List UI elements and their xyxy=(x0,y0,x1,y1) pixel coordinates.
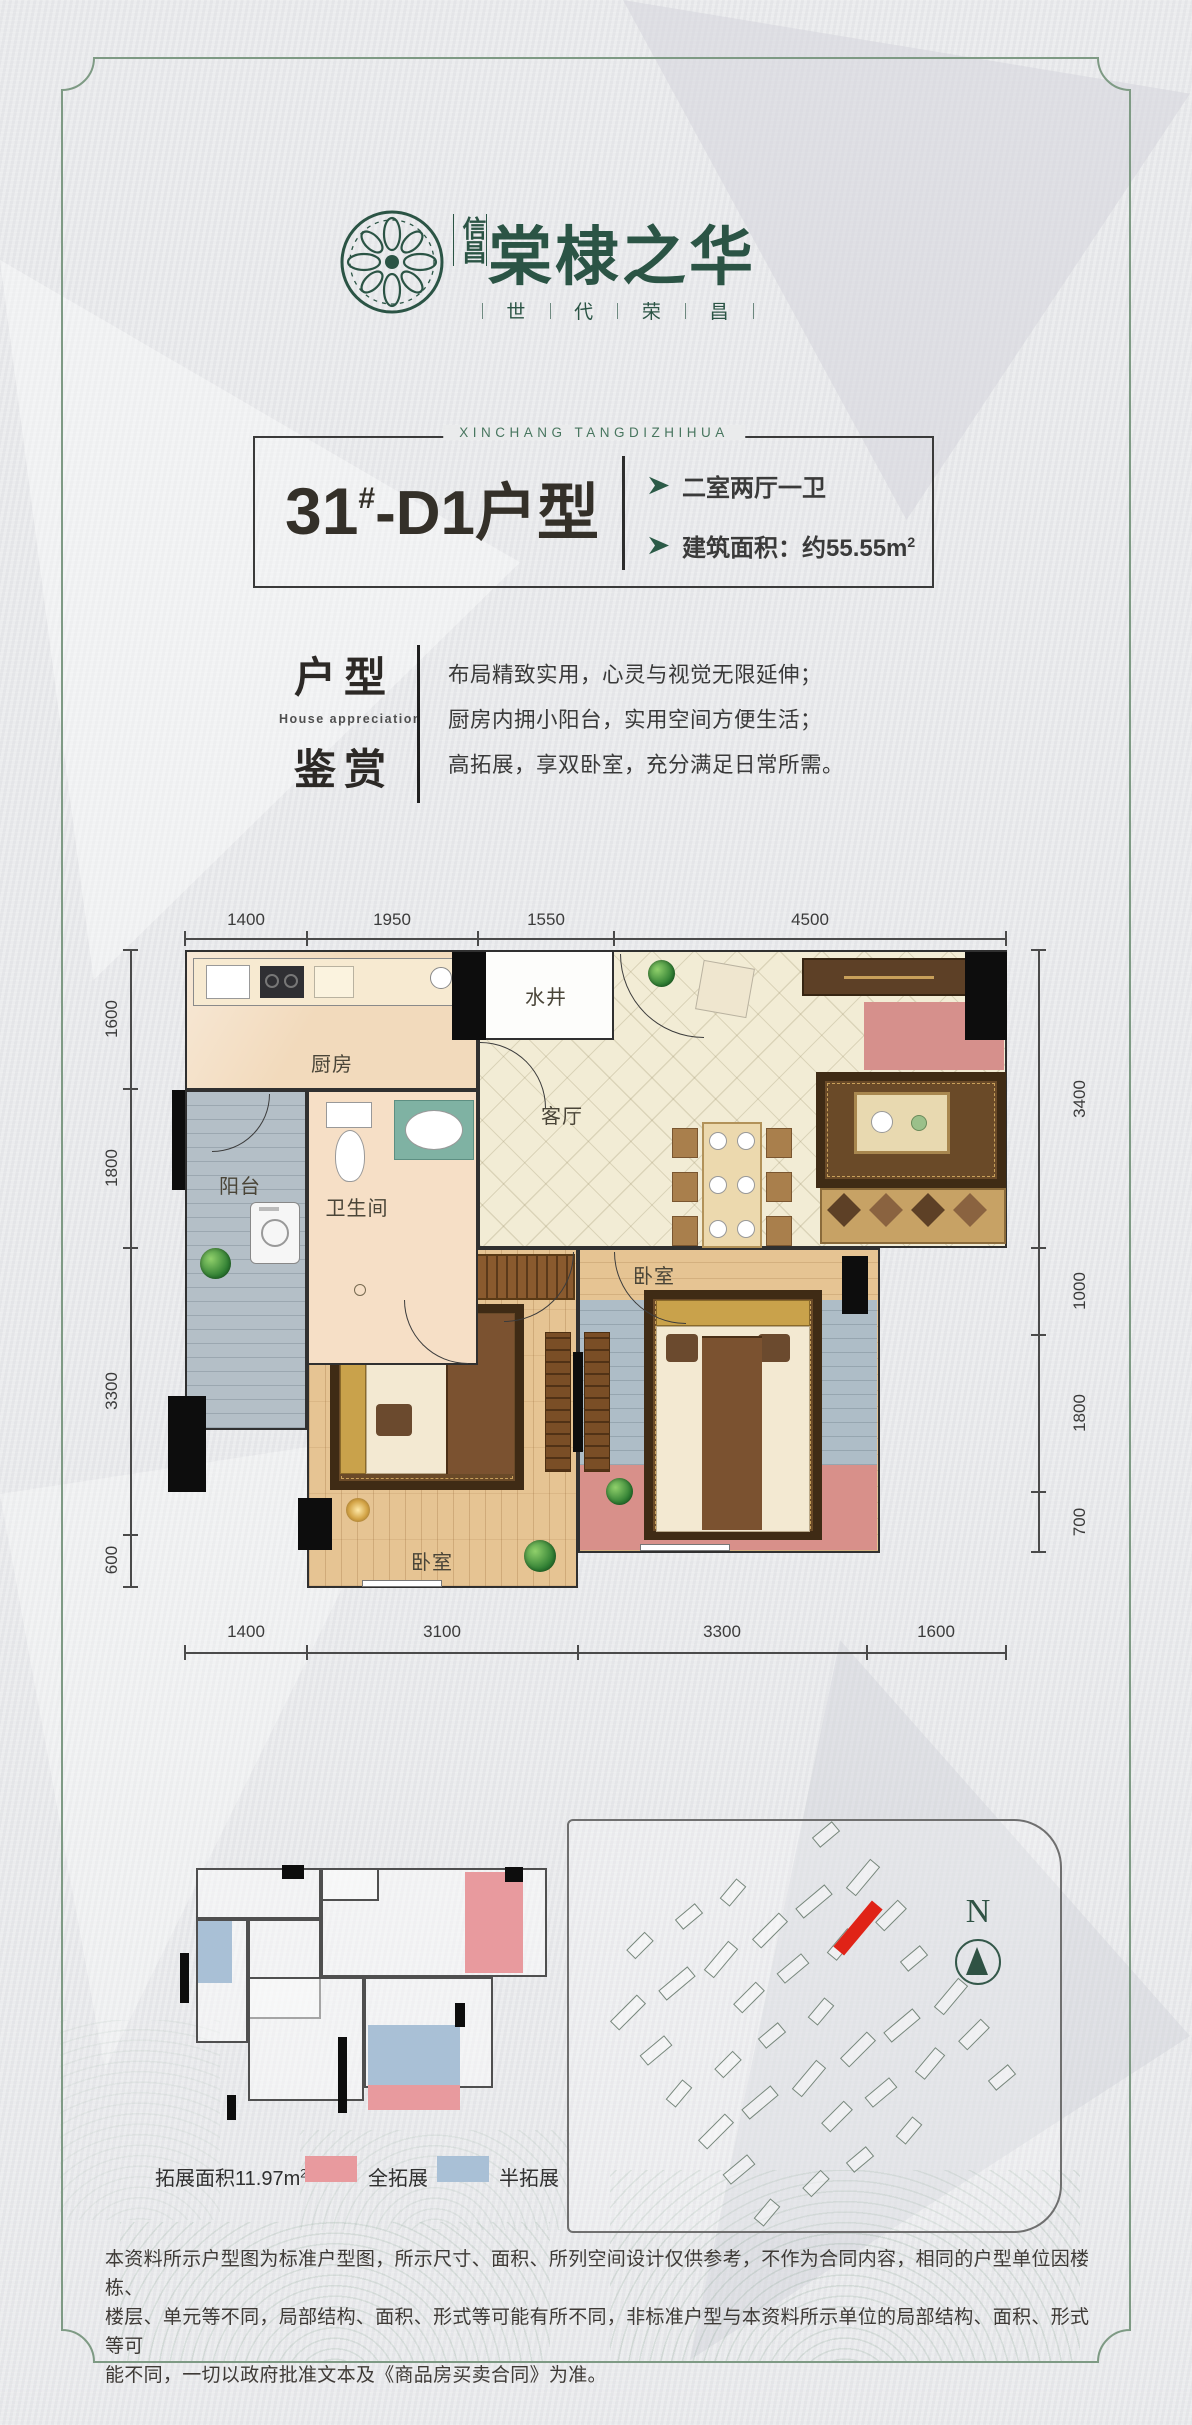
dim-line-bottom xyxy=(185,1652,1007,1654)
wardrobe xyxy=(545,1332,571,1472)
appreciation-line: 布局精致实用，心灵与视觉无限延伸； xyxy=(448,653,844,698)
mini-half-expansion xyxy=(198,1921,232,1983)
disclaimer-line: 能不同，一切以政府批准文本及《商品房买卖合同》为准。 xyxy=(105,2361,1095,2390)
structural-column xyxy=(452,952,486,1040)
site-building-outline xyxy=(751,1912,787,1948)
tv-cabinet xyxy=(802,958,974,996)
counter-sink-round xyxy=(430,967,452,989)
dining-chair xyxy=(766,1172,792,1202)
structural-column xyxy=(842,1256,868,1314)
mini-full-expansion xyxy=(368,2085,460,2110)
vanity-counter xyxy=(394,1100,474,1160)
feature-arrow-icon xyxy=(649,476,669,495)
bed-pillow xyxy=(758,1334,790,1362)
site-building-outline xyxy=(658,1966,695,2000)
bedroom1-door-arc xyxy=(504,1252,574,1322)
structural-column xyxy=(168,1396,206,1492)
room-label-bedroom1: 卧室 xyxy=(402,1546,462,1575)
site-building-outline xyxy=(807,1997,834,2025)
site-building-outline xyxy=(753,2198,780,2226)
ceiling-lamp-icon xyxy=(354,1284,366,1296)
brand-medallion-icon xyxy=(338,208,446,316)
site-building-outline xyxy=(714,2050,742,2078)
slogan-divider xyxy=(482,303,483,319)
structural-column xyxy=(965,952,1007,1040)
legend-swatch-full xyxy=(305,2156,357,2182)
site-building-outline xyxy=(609,1994,645,2030)
room-label-well: 水井 xyxy=(525,981,567,1010)
site-building-outline xyxy=(791,2059,825,2096)
entry-door-arc xyxy=(620,954,704,1038)
dim-left-3: 3300 xyxy=(102,1361,122,1421)
dim-left-4: 600 xyxy=(102,1530,122,1590)
toilet-bowl xyxy=(335,1130,365,1182)
brand-name-large: 棠棣之华 xyxy=(488,206,756,298)
slogan-divider xyxy=(617,303,618,319)
site-building-outline xyxy=(733,1981,765,2013)
unit-number-sup: # xyxy=(358,482,375,515)
site-building-outline xyxy=(895,2116,922,2144)
dim-right-4: 700 xyxy=(1070,1492,1090,1552)
bed-pillow xyxy=(376,1404,412,1436)
brand-slogan: 世 代 荣 昌 xyxy=(482,297,754,324)
room-label-kitchen: 厨房 xyxy=(302,1048,362,1077)
coffee-table xyxy=(854,1092,950,1154)
dim-top-4: 4500 xyxy=(780,910,840,930)
room-balcony: 阳台 xyxy=(185,1090,307,1430)
bath-door-arc xyxy=(404,1300,468,1364)
feature-row: 二室两厅一卫 xyxy=(649,468,826,503)
site-building-outline xyxy=(811,1821,839,1848)
dim-line-right xyxy=(1038,950,1040,1553)
slogan-char: 荣 xyxy=(642,297,662,324)
room-kitchen: 厨房 xyxy=(185,950,478,1090)
feature-text: 二室两厅一卫 xyxy=(682,468,826,503)
appreciation-heading-1: 户型 xyxy=(294,644,394,705)
site-building-outline xyxy=(722,2154,755,2185)
feature-arrow-icon xyxy=(649,536,669,555)
slogan-char: 世 xyxy=(506,297,526,324)
dining-chair xyxy=(672,1128,698,1158)
unit-title-box: 31#-D1户型 二室两厅一卫 建筑面积：约55.55m2 xyxy=(253,436,934,588)
site-building-outline xyxy=(665,2079,692,2107)
door-mat xyxy=(695,960,755,1018)
appreciation-text: 布局精致实用，心灵与视觉无限延伸； 厨房内拥小阳台，实用空间方便生活； 高拓展，… xyxy=(448,653,844,788)
dining-chair xyxy=(766,1128,792,1158)
stove xyxy=(260,966,304,998)
unit-title: 31#-D1户型 xyxy=(285,462,599,552)
site-building-outline xyxy=(987,2064,1015,2091)
bed-pillow xyxy=(666,1334,698,1362)
site-building-outline xyxy=(821,2100,853,2132)
dim-left-1: 1600 xyxy=(102,989,122,1049)
site-building-outline xyxy=(795,1884,832,1918)
dim-bottom-4: 1600 xyxy=(906,1622,966,1642)
structural-column xyxy=(298,1498,332,1550)
plant-icon xyxy=(200,1248,231,1279)
window xyxy=(362,1580,442,1587)
dining-chair xyxy=(672,1216,698,1246)
disclaimer-line: 楼层、单元等不同，局部结构、面积、形式等可能有所不同，非标准户型与本资料所示单位… xyxy=(105,2303,1095,2361)
dim-bottom-3: 3300 xyxy=(692,1622,752,1642)
slogan-divider xyxy=(550,303,551,319)
site-building-outline xyxy=(674,1903,702,1930)
dining-chair xyxy=(672,1172,698,1202)
structural-wall xyxy=(573,1352,583,1452)
dim-top-3: 1550 xyxy=(516,910,576,930)
room-bedroom2: 卧室 xyxy=(578,1248,880,1553)
room-label-bath: 卫生间 xyxy=(317,1192,397,1221)
dining-chair xyxy=(766,1216,792,1246)
appreciation-line: 高拓展，享双卧室，充分满足日常所需。 xyxy=(448,743,844,788)
room-bath: 卫生间 xyxy=(307,1090,478,1365)
site-building-outline xyxy=(776,1953,809,1984)
mini-half-expansion xyxy=(368,2025,460,2085)
site-building-outline xyxy=(757,2022,785,2049)
brand-latin: XINCHANG TANGDIZHIHUA xyxy=(443,425,745,440)
site-building-outline xyxy=(899,1945,927,1972)
plant-icon xyxy=(524,1540,556,1572)
kitchen-sink xyxy=(206,965,250,999)
site-building-outline xyxy=(626,1931,654,1959)
dim-right-3: 1800 xyxy=(1070,1383,1090,1443)
slogan-char: 代 xyxy=(574,297,594,324)
slogan-divider xyxy=(685,303,686,319)
structural-column xyxy=(172,1090,185,1190)
balcony-door-arc xyxy=(212,1094,270,1152)
expansion-area-label: 拓展面积11.97m2 xyxy=(155,2162,307,2191)
appreciation-line: 厨房内拥小阳台，实用空间方便生活； xyxy=(448,698,844,743)
title-divider xyxy=(622,456,625,570)
site-building-outline xyxy=(639,2035,672,2066)
unit-name: -D1户型 xyxy=(375,479,599,548)
dim-top-2: 1950 xyxy=(362,910,422,930)
poster-page: 信昌 棠棣之华 世 代 荣 昌 31#-D1户型 二室两厅一卫 建筑面积：约55… xyxy=(0,0,1192,2425)
kitchen-counter xyxy=(193,958,470,1006)
slogan-divider xyxy=(753,303,754,319)
toilet xyxy=(326,1102,372,1128)
site-plan-buildings xyxy=(569,1821,1060,2231)
site-building-outline xyxy=(914,2047,945,2080)
feature-row: 建筑面积：约55.55m2 xyxy=(649,528,915,563)
window xyxy=(640,1544,730,1551)
legend-swatch-half xyxy=(437,2156,489,2182)
legend-label-half: 半拓展 xyxy=(499,2162,559,2191)
site-building-outline xyxy=(875,1899,907,1931)
dim-right-1: 3400 xyxy=(1070,1069,1090,1129)
nightstand-lamp xyxy=(346,1498,370,1522)
disclaimer: 本资料所示户型图为标准户型图，所示尺寸、面积、所列空间设计仅供参考，不作为合同内… xyxy=(105,2245,1095,2390)
plant-icon xyxy=(606,1478,633,1505)
brand-name-small: 信昌 xyxy=(453,214,487,266)
dim-line-top xyxy=(185,938,1007,940)
dim-line-left xyxy=(130,950,132,1588)
dim-top-1: 1400 xyxy=(216,910,276,930)
site-building-outline xyxy=(845,2146,873,2173)
site-building-outline xyxy=(719,1878,746,1906)
dim-bottom-2: 3100 xyxy=(412,1622,472,1642)
site-building-outline xyxy=(864,2077,897,2108)
sofa xyxy=(820,1188,1006,1244)
wardrobe xyxy=(584,1332,610,1472)
north-label: N xyxy=(961,1893,995,1931)
site-building-outline xyxy=(802,2169,830,2197)
site-building-outline xyxy=(741,2085,778,2119)
mini-full-expansion xyxy=(465,1872,523,1973)
legend-label-full: 全拓展 xyxy=(368,2162,428,2191)
bg-facet xyxy=(0,260,520,980)
dim-left-2: 1800 xyxy=(102,1138,122,1198)
north-compass-icon xyxy=(955,1939,1001,1985)
disclaimer-line: 本资料所示户型图为标准户型图，所示尺寸、面积、所列空间设计仅供参考，不作为合同内… xyxy=(105,2245,1095,2303)
site-building-outline xyxy=(958,2018,990,2050)
counter-board xyxy=(314,966,354,998)
dim-bottom-1: 1400 xyxy=(216,1622,276,1642)
dining-table xyxy=(702,1122,762,1248)
unit-number: 31 xyxy=(285,474,358,548)
room-well: 水井 xyxy=(478,950,614,1040)
slogan-char: 昌 xyxy=(710,297,730,324)
site-building-outline xyxy=(845,1858,879,1895)
bed-blanket xyxy=(702,1336,762,1530)
feature-sup: 2 xyxy=(907,534,915,550)
appreciation-heading-en: House appreciation xyxy=(279,712,422,726)
dim-right-2: 1000 xyxy=(1070,1261,1090,1321)
site-plan: N xyxy=(567,1819,1062,2233)
room-label-balcony: 阳台 xyxy=(210,1170,270,1199)
appreciation-divider xyxy=(417,645,420,803)
feature-text: 建筑面积：约55.55m2 xyxy=(682,528,915,563)
mini-room-well xyxy=(321,1868,379,1901)
site-building-outline xyxy=(839,2031,875,2067)
site-building-outline xyxy=(883,2008,920,2042)
site-building-outline xyxy=(933,1977,967,2014)
site-building-outline xyxy=(703,1940,737,1977)
site-building-outline xyxy=(697,2113,733,2149)
washing-machine xyxy=(250,1202,300,1264)
expansion-plan xyxy=(180,1862,538,2122)
appreciation-heading-2: 鉴赏 xyxy=(294,736,394,797)
